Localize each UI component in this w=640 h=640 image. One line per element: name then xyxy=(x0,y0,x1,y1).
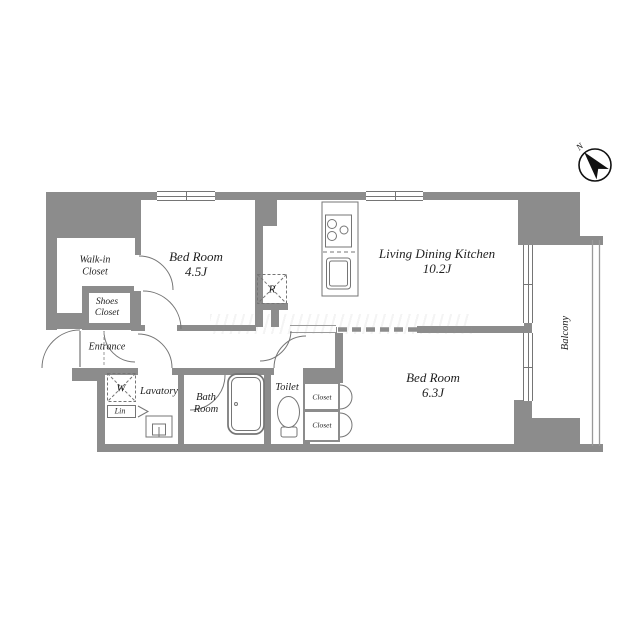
compass-north-label: N xyxy=(573,140,586,153)
stove-burner xyxy=(328,232,337,241)
linen-label: Lin xyxy=(115,406,126,415)
closet-lower-label: Closet xyxy=(312,422,331,431)
window-balcony-ldk xyxy=(523,245,533,323)
kitchen-sink xyxy=(327,258,351,289)
entrance-label: Entrance xyxy=(89,341,126,353)
window xyxy=(157,191,215,201)
bedroom2-label: Bed Room6.3J xyxy=(406,371,460,401)
lavatory-sink-bowl xyxy=(153,424,166,435)
walkin-closet-door-arc xyxy=(139,256,173,290)
wall xyxy=(514,400,532,446)
balcony-railing xyxy=(593,240,600,446)
entrance-door-arc xyxy=(42,330,80,368)
closet-box xyxy=(303,382,340,442)
wall xyxy=(178,372,184,446)
bedroom1-label: Bed Room4.5J xyxy=(169,250,223,280)
wall xyxy=(264,368,271,446)
lavatory-sink xyxy=(146,416,172,437)
wall xyxy=(46,192,138,238)
wall xyxy=(532,418,580,446)
wall xyxy=(103,368,138,375)
wall xyxy=(255,196,277,226)
wall xyxy=(255,303,288,310)
lavatory-label: Lavatory xyxy=(140,386,178,398)
wall xyxy=(518,192,580,240)
bathtub-inner xyxy=(232,378,261,431)
compass: N xyxy=(572,136,620,188)
compass-circle xyxy=(579,149,611,181)
linen-door xyxy=(138,406,148,417)
washer-label: W xyxy=(116,383,125,396)
toilet-label: Toilet xyxy=(275,382,299,394)
closet-upper-label: Closet xyxy=(312,394,331,403)
wall xyxy=(97,372,105,452)
wall xyxy=(172,368,274,375)
toilet-bowl xyxy=(278,397,300,428)
closet-lower-door-arc xyxy=(340,413,352,437)
shoes-closet-label: ShoesCloset xyxy=(95,297,119,319)
bathroom-label: BathRoom xyxy=(194,392,219,416)
bathtub xyxy=(228,374,264,434)
closet-upper-door-arc xyxy=(340,385,352,409)
balcony-label: Balcony xyxy=(560,316,572,350)
north-arrow-icon xyxy=(578,147,609,179)
wall xyxy=(518,236,603,245)
stove-burner xyxy=(328,220,337,229)
toilet-door-arc xyxy=(274,336,306,368)
closet-divider xyxy=(303,409,340,412)
toilet-tank xyxy=(281,427,297,437)
bathtub-drain xyxy=(235,403,238,406)
walkin-closet-label: Walk-inCloset xyxy=(80,255,111,278)
wall xyxy=(135,325,145,331)
window-balcony-bedroom2 xyxy=(523,333,533,401)
watermark xyxy=(210,314,472,334)
wall xyxy=(46,313,83,329)
refrigerator-label: R xyxy=(269,284,276,297)
ldk-label: Living Dining Kitchen10.2J xyxy=(379,247,495,277)
stove xyxy=(326,215,352,247)
wall xyxy=(46,192,57,330)
floor-plan: Bed Room4.5J Living Dining Kitchen10.2J … xyxy=(0,0,640,640)
ldk-door-arc xyxy=(260,331,291,361)
kitchen-counter xyxy=(322,202,358,296)
stove-burner xyxy=(340,226,348,234)
window xyxy=(366,191,423,201)
doorway xyxy=(134,255,142,291)
lavatory-door-arc xyxy=(138,334,172,368)
wall xyxy=(255,226,263,304)
bedroom1-door-arc xyxy=(143,291,181,329)
kitchen-sink-inner xyxy=(330,261,348,286)
